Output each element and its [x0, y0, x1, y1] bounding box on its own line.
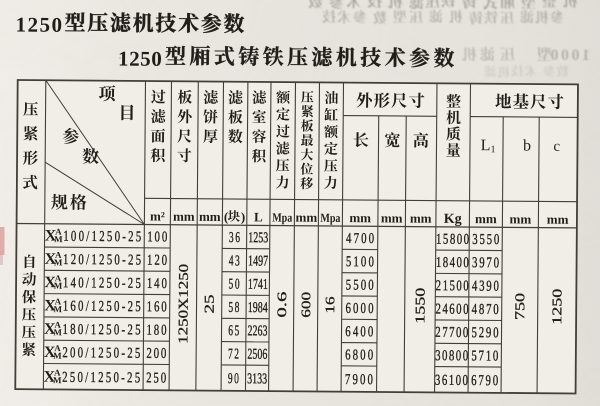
svg-text:Kg: Kg [444, 212, 462, 227]
svg-text:mm: mm [349, 210, 371, 225]
svg-text:16: 16 [322, 296, 337, 314]
svg-text:600: 600 [298, 292, 313, 318]
svg-text:200: 200 [146, 344, 167, 361]
svg-text:Mpa: Mpa [320, 211, 341, 225]
svg-text:1250: 1250 [549, 288, 564, 324]
svg-text:1550: 1550 [412, 287, 427, 323]
svg-text:1250: 1250 [118, 47, 163, 71]
svg-text:200/1250-25: 200/1250-25 [62, 343, 140, 361]
svg-text:120/1250-25: 120/1250-25 [63, 250, 141, 268]
svg-text:mm: mm [547, 212, 569, 227]
svg-text:c: c [553, 139, 560, 155]
svg-text:1497: 1497 [248, 252, 268, 269]
svg-text:140/1250-25: 140/1250-25 [63, 273, 141, 291]
svg-text:27700: 27700 [435, 323, 468, 340]
svg-text:mm: mm [381, 210, 403, 225]
svg-text:mm: mm [410, 211, 432, 226]
svg-text:3133: 3133 [247, 370, 267, 387]
svg-text:M: M [53, 375, 62, 385]
svg-text:L: L [481, 137, 491, 154]
svg-text:1: 1 [490, 144, 495, 155]
svg-text:25: 25 [202, 294, 217, 313]
svg-text:1253: 1253 [248, 229, 268, 246]
svg-text:180: 180 [146, 321, 167, 338]
svg-text:100: 100 [147, 228, 168, 245]
svg-text:mm: mm [199, 209, 221, 224]
svg-text:100/1250-25: 100/1250-25 [63, 227, 141, 245]
svg-text:mm: mm [475, 211, 497, 226]
svg-text:36100: 36100 [435, 371, 468, 388]
svg-text:15800: 15800 [436, 230, 469, 247]
svg-text:M: M [54, 234, 63, 244]
svg-text:180/1250-25: 180/1250-25 [62, 320, 140, 338]
svg-text:mm: mm [510, 211, 532, 226]
svg-text:120: 120 [147, 251, 168, 268]
svg-text:mm: mm [296, 210, 318, 225]
svg-text:30800: 30800 [435, 346, 468, 363]
svg-text:1741: 1741 [248, 276, 268, 293]
svg-text:1250X1250: 1250X1250 [175, 263, 191, 343]
svg-text:2506: 2506 [247, 346, 267, 363]
svg-text:M: M [53, 351, 62, 361]
svg-text:160/1250-25: 160/1250-25 [63, 297, 141, 315]
svg-text:): ) [241, 209, 245, 224]
svg-text:0.6: 0.6 [274, 291, 289, 318]
svg-text:L: L [254, 209, 263, 224]
svg-text:b: b [523, 137, 531, 154]
svg-text:24600: 24600 [435, 300, 468, 317]
svg-text:m²: m² [150, 209, 165, 224]
svg-text:1250: 1250 [15, 12, 63, 36]
svg-text:Mpa: Mpa [272, 211, 293, 225]
svg-text:160: 160 [147, 297, 168, 314]
svg-text:18400: 18400 [436, 253, 469, 270]
svg-text:21500: 21500 [436, 276, 469, 293]
svg-text:M: M [54, 281, 63, 291]
svg-text:750: 750 [512, 293, 527, 320]
svg-text:M: M [54, 257, 63, 267]
svg-text:250/1250-25: 250/1250-25 [62, 368, 140, 386]
svg-text:(: ( [224, 209, 228, 224]
svg-text:2263: 2263 [247, 322, 267, 339]
svg-text:140: 140 [147, 274, 168, 291]
svg-text:1984: 1984 [248, 299, 269, 316]
svg-text:M: M [53, 327, 62, 337]
svg-text:mm: mm [173, 209, 195, 224]
svg-text:M: M [54, 304, 63, 314]
svg-text:250: 250 [146, 369, 167, 386]
